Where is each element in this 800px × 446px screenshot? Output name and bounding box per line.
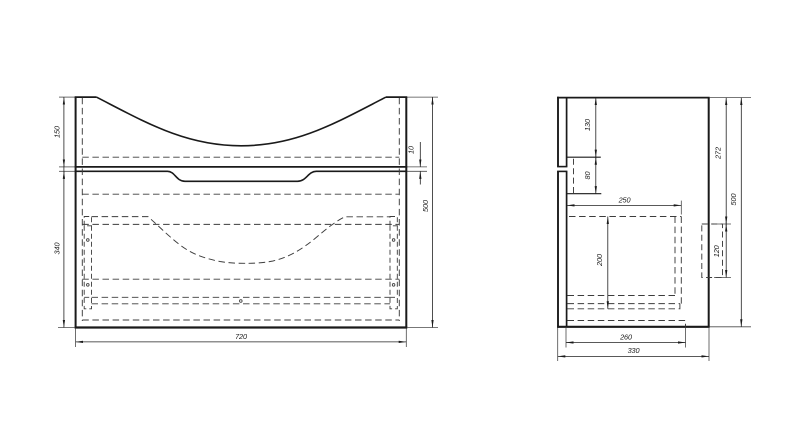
svg-text:330: 330 bbox=[628, 346, 640, 355]
svg-text:150: 150 bbox=[52, 126, 61, 138]
svg-text:130: 130 bbox=[583, 119, 592, 131]
svg-text:272: 272 bbox=[714, 147, 723, 160]
svg-text:720: 720 bbox=[235, 332, 247, 341]
svg-text:500: 500 bbox=[421, 200, 430, 212]
svg-text:260: 260 bbox=[619, 332, 632, 341]
svg-text:10: 10 bbox=[407, 146, 416, 154]
svg-text:500: 500 bbox=[729, 194, 738, 206]
svg-text:80: 80 bbox=[583, 172, 592, 180]
svg-text:200: 200 bbox=[595, 254, 604, 267]
svg-text:250: 250 bbox=[618, 195, 631, 204]
svg-text:340: 340 bbox=[52, 243, 61, 255]
svg-text:120: 120 bbox=[712, 245, 721, 257]
